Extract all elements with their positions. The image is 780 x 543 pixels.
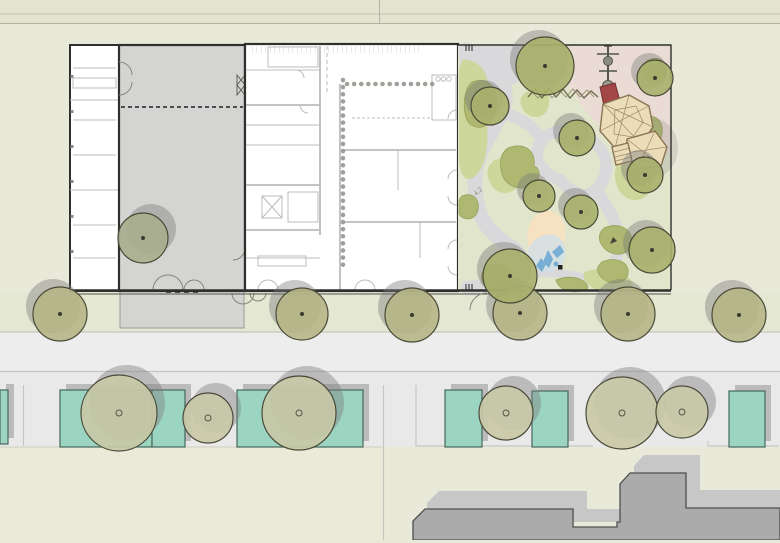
tree-canopy xyxy=(586,377,658,449)
tree-trunk xyxy=(58,312,62,316)
tree-trunk xyxy=(508,274,512,278)
rear-gardens-left xyxy=(0,447,383,543)
north-road-band xyxy=(0,0,780,23)
tree-trunk xyxy=(737,313,741,317)
tree-canopy xyxy=(183,393,233,443)
left-wing xyxy=(70,45,119,291)
forecourt xyxy=(120,291,244,328)
tree-trunk xyxy=(579,210,583,214)
tree-trunk xyxy=(488,104,492,108)
site-plan-scene: 4,2 xyxy=(0,0,780,543)
tree-trunk xyxy=(141,236,145,240)
center-wing-outline xyxy=(245,44,458,291)
tree-trunk xyxy=(300,312,304,316)
tree-trunk xyxy=(518,311,522,315)
tree-trunk xyxy=(537,194,541,198)
tree-canopy xyxy=(81,375,157,451)
tree-canopy xyxy=(262,376,336,450)
front-yard xyxy=(0,390,8,444)
tree-trunk xyxy=(643,173,647,177)
front-yard xyxy=(729,391,765,447)
tree-trunk xyxy=(626,312,630,316)
tree-trunk xyxy=(650,248,654,252)
street xyxy=(0,332,780,372)
tree-canopy xyxy=(656,386,708,438)
tree-canopy xyxy=(479,386,533,440)
site-plan-drawing: 4,2 xyxy=(0,0,780,543)
front-yard xyxy=(445,390,482,447)
marker-dot xyxy=(558,265,563,270)
left-wing-outline xyxy=(70,45,119,291)
tree-trunk xyxy=(575,136,579,140)
tree-trunk xyxy=(410,313,414,317)
tree-trunk xyxy=(543,64,547,68)
tree-trunk xyxy=(653,76,657,80)
center-wing xyxy=(245,44,458,291)
